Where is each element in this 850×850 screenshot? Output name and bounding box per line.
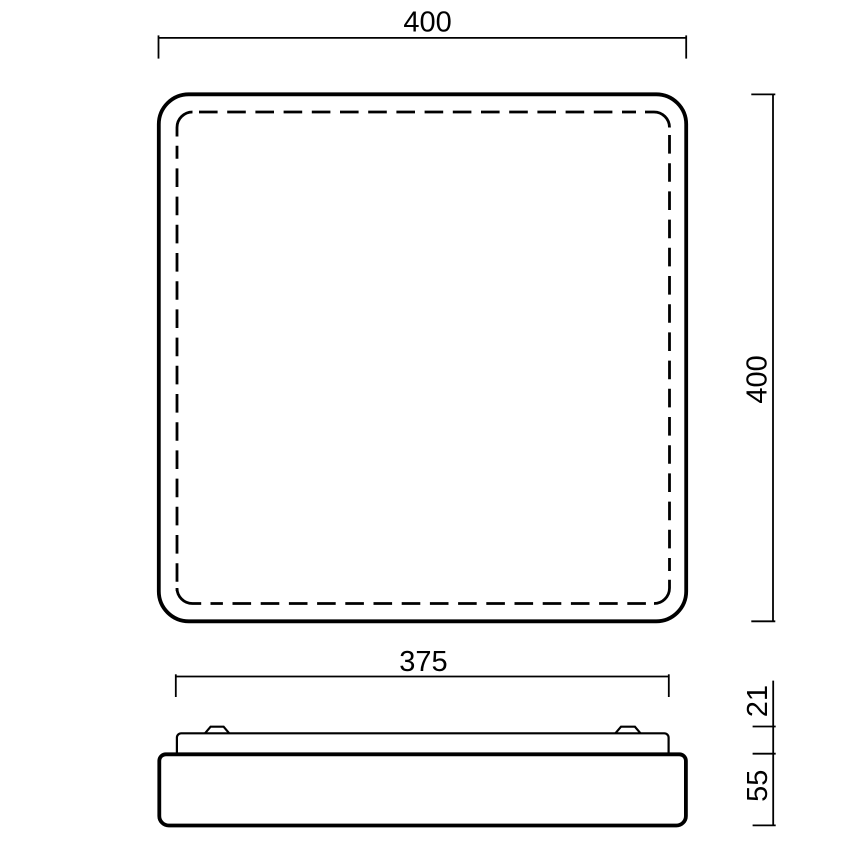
svg-text:400: 400 <box>742 355 774 403</box>
svg-text:375: 375 <box>399 646 447 678</box>
svg-text:55: 55 <box>742 770 774 802</box>
svg-text:400: 400 <box>403 6 451 38</box>
svg-text:21: 21 <box>742 685 774 717</box>
